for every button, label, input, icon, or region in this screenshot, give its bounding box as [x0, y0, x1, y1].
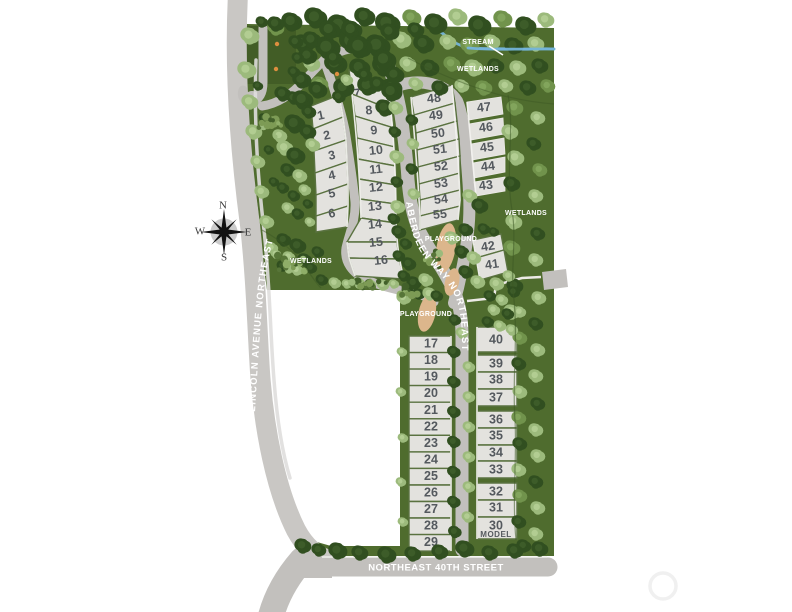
svg-text:37: 37	[489, 390, 503, 404]
svg-text:13: 13	[367, 199, 382, 214]
svg-text:45: 45	[479, 140, 494, 155]
svg-text:NORTHEAST 40TH STREET: NORTHEAST 40TH STREET	[368, 563, 504, 574]
svg-text:E: E	[245, 227, 252, 239]
svg-text:52: 52	[433, 159, 448, 174]
svg-text:24: 24	[424, 452, 438, 466]
svg-text:27: 27	[424, 502, 438, 516]
svg-text:10: 10	[368, 143, 383, 158]
svg-text:46: 46	[478, 120, 493, 135]
svg-text:17: 17	[424, 337, 438, 351]
svg-text:28: 28	[424, 519, 438, 533]
svg-text:53: 53	[433, 176, 448, 191]
svg-text:34: 34	[489, 445, 503, 459]
svg-text:38: 38	[489, 372, 503, 386]
svg-text:11: 11	[369, 162, 384, 177]
svg-text:54: 54	[433, 192, 448, 207]
svg-text:N: N	[219, 200, 227, 212]
svg-text:18: 18	[424, 353, 438, 367]
svg-text:22: 22	[424, 419, 438, 433]
svg-text:21: 21	[424, 403, 438, 417]
svg-text:MODEL: MODEL	[480, 530, 511, 539]
svg-text:42: 42	[480, 238, 496, 254]
svg-text:STREAM: STREAM	[462, 39, 493, 46]
svg-text:WETLANDS: WETLANDS	[457, 66, 499, 73]
svg-text:50: 50	[430, 126, 445, 141]
svg-text:S: S	[221, 252, 227, 264]
svg-text:35: 35	[489, 428, 503, 442]
svg-text:49: 49	[428, 108, 443, 123]
svg-text:41: 41	[484, 256, 500, 272]
svg-text:20: 20	[424, 386, 438, 400]
svg-text:16: 16	[373, 253, 388, 268]
svg-text:51: 51	[432, 142, 447, 157]
svg-text:WETLANDS: WETLANDS	[290, 258, 332, 265]
svg-text:15: 15	[368, 235, 383, 250]
svg-text:26: 26	[424, 486, 438, 500]
svg-text:14: 14	[367, 217, 382, 232]
svg-text:55: 55	[432, 207, 447, 222]
svg-text:PLAYGROUND: PLAYGROUND	[425, 236, 477, 243]
svg-text:32: 32	[489, 484, 503, 498]
svg-text:W: W	[195, 226, 206, 238]
svg-text:WETLANDS: WETLANDS	[505, 210, 547, 217]
svg-text:19: 19	[424, 370, 438, 384]
svg-text:31: 31	[489, 500, 503, 514]
svg-text:36: 36	[489, 412, 503, 426]
svg-text:43: 43	[478, 178, 493, 193]
svg-text:39: 39	[489, 356, 503, 370]
svg-text:44: 44	[480, 159, 495, 174]
svg-text:25: 25	[424, 469, 438, 483]
svg-text:33: 33	[489, 462, 503, 476]
svg-text:40: 40	[489, 332, 503, 346]
svg-text:12: 12	[368, 180, 383, 195]
svg-text:23: 23	[424, 436, 438, 450]
svg-text:47: 47	[476, 100, 491, 115]
svg-text:PLAYGROUND: PLAYGROUND	[400, 311, 452, 318]
